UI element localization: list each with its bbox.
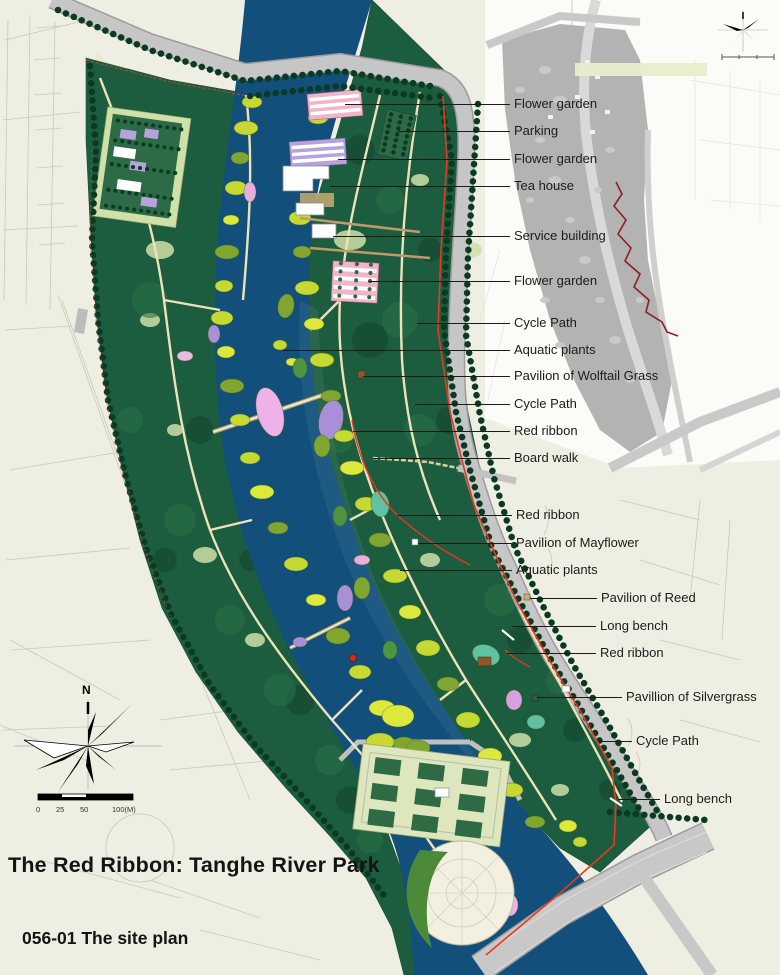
site-plan-map: N 0 25 50 100(M): [0, 0, 780, 975]
red-sculpture-dot: [350, 655, 357, 662]
leader-line: [530, 598, 597, 599]
flower-garden-mid: [289, 138, 347, 168]
scale-tick-25: 25: [56, 805, 64, 814]
site-plan-page: N 0 25 50 100(M) Flower gardenParkingFlo…: [0, 0, 780, 975]
garden-building: [435, 788, 449, 797]
map-label: Aquatic plants: [516, 562, 598, 577]
leader-line: [283, 350, 510, 351]
map-label: Aquatic plants: [514, 342, 596, 357]
map-label: Red ribbon: [600, 645, 664, 660]
west-garden-grid: [92, 107, 190, 228]
leader-line: [417, 323, 510, 324]
pavilion-mayflower-marker: [412, 539, 418, 545]
leader-line: [368, 281, 510, 282]
leader-line: [598, 741, 632, 742]
map-label: Pavillion of Silvergrass: [626, 689, 757, 704]
leader-line: [418, 543, 512, 544]
scale-tick-100: 100(M): [112, 805, 136, 814]
map-label: Cycle Path: [636, 733, 699, 748]
leader-line: [345, 104, 510, 105]
scale-tick-0: 0: [36, 805, 40, 814]
map-label: Cycle Path: [514, 396, 577, 411]
map-label: Long bench: [600, 618, 668, 633]
leader-line: [330, 186, 510, 187]
pavilion-reed-marker: [524, 594, 530, 600]
map-label: Tea house: [514, 178, 574, 193]
bottom-garden-grid: [353, 744, 510, 847]
inset-highlight-band: [575, 63, 707, 76]
leader-line: [618, 799, 660, 800]
map-label: Long bench: [664, 791, 732, 806]
map-label: Red ribbon: [514, 423, 578, 438]
map-label: Pavilion of Reed: [601, 590, 696, 605]
map-label: Flower garden: [514, 273, 597, 288]
leader-line: [397, 515, 512, 516]
map-label: Board walk: [514, 450, 578, 465]
map-label: Flower garden: [514, 96, 597, 111]
map-label: Red ribbon: [516, 507, 580, 522]
leader-line: [400, 570, 512, 571]
leader-line: [353, 431, 510, 432]
leader-line: [333, 236, 510, 237]
map-label: Flower garden: [514, 151, 597, 166]
scale-tick-50: 50: [80, 805, 88, 814]
flower-garden-south: [331, 261, 379, 303]
map-label: Parking: [514, 123, 558, 138]
page-title: The Red Ribbon: Tanghe River Park: [8, 853, 380, 878]
map-label: Cycle Path: [514, 315, 577, 330]
leader-line: [373, 458, 510, 459]
map-label: Service building: [514, 228, 606, 243]
pavilion-silvergrass-marker: [532, 695, 538, 701]
map-label: Pavilion of Wolftail Grass: [514, 368, 658, 383]
north-label: N: [82, 683, 91, 697]
leader-line: [338, 159, 510, 160]
map-label: Pavilion of Mayflower: [516, 535, 639, 550]
leader-line: [398, 131, 510, 132]
leader-line: [512, 626, 596, 627]
page-caption: 056-01 The site plan: [22, 928, 188, 949]
leader-line: [537, 697, 622, 698]
leader-line: [507, 653, 596, 654]
leader-line: [363, 376, 510, 377]
leader-line: [415, 404, 510, 405]
